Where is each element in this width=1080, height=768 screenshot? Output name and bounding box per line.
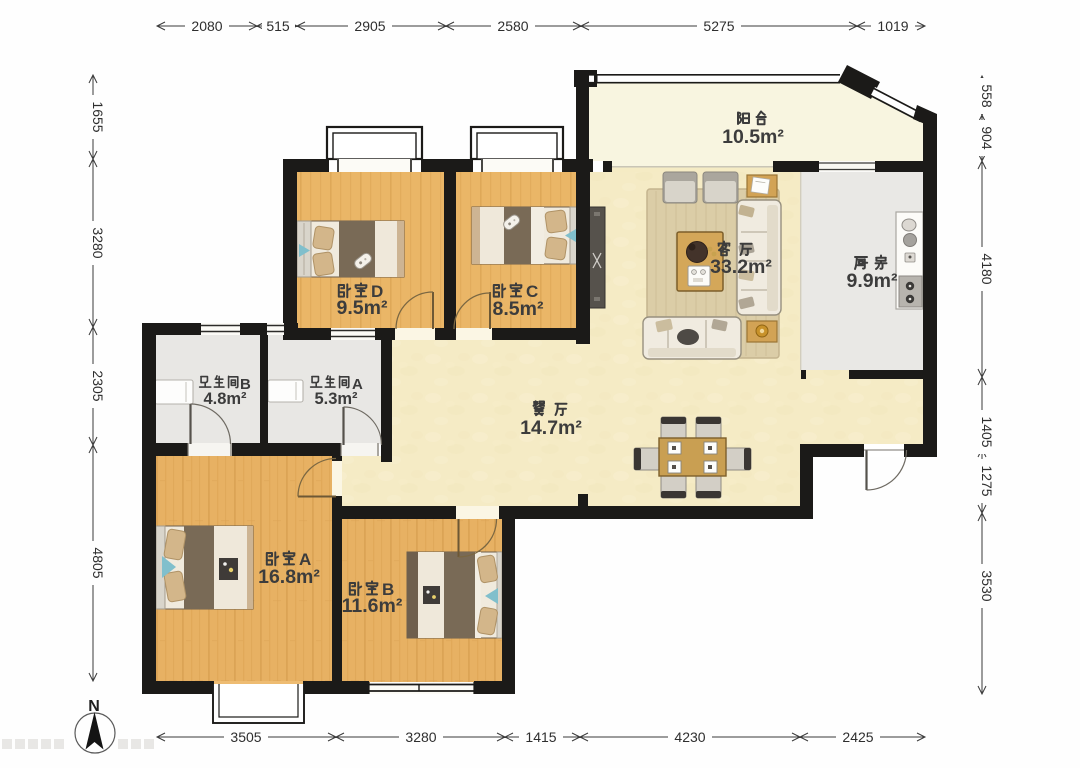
svg-text:4805: 4805	[90, 547, 106, 578]
svg-text:16.8m²: 16.8m²	[258, 566, 320, 588]
svg-text:8.5m²: 8.5m²	[493, 298, 544, 320]
svg-text:515: 515	[266, 18, 290, 34]
svg-text:1275: 1275	[979, 465, 995, 496]
svg-text:3280: 3280	[90, 227, 106, 258]
svg-text:9.5m²: 9.5m²	[337, 297, 388, 319]
svg-text:1415: 1415	[525, 729, 556, 745]
svg-text:11.6m²: 11.6m²	[342, 595, 403, 617]
svg-text:2305: 2305	[90, 370, 106, 401]
svg-text:3280: 3280	[405, 729, 436, 745]
svg-text:4180: 4180	[979, 253, 995, 284]
svg-text:1019: 1019	[877, 18, 908, 34]
svg-text:33.2m²: 33.2m²	[710, 256, 772, 278]
svg-text:2580: 2580	[497, 18, 528, 34]
svg-text:9.9m²: 9.9m²	[847, 270, 898, 292]
svg-text:904: 904	[979, 126, 995, 150]
svg-text:1405: 1405	[979, 416, 995, 447]
svg-text:4.8m²: 4.8m²	[203, 390, 247, 408]
svg-text:1655: 1655	[90, 101, 106, 132]
svg-text:5.3m²: 5.3m²	[314, 390, 358, 408]
svg-text:14.7m²: 14.7m²	[520, 417, 582, 439]
svg-text:5275: 5275	[703, 18, 734, 34]
svg-text:10.5m²: 10.5m²	[722, 126, 784, 148]
svg-text:2425: 2425	[842, 729, 873, 745]
svg-text:2905: 2905	[354, 18, 385, 34]
svg-text:4230: 4230	[674, 729, 705, 745]
svg-text:558: 558	[979, 84, 995, 108]
svg-text:3530: 3530	[979, 570, 995, 601]
svg-text:2080: 2080	[191, 18, 222, 34]
svg-text:3505: 3505	[230, 729, 261, 745]
